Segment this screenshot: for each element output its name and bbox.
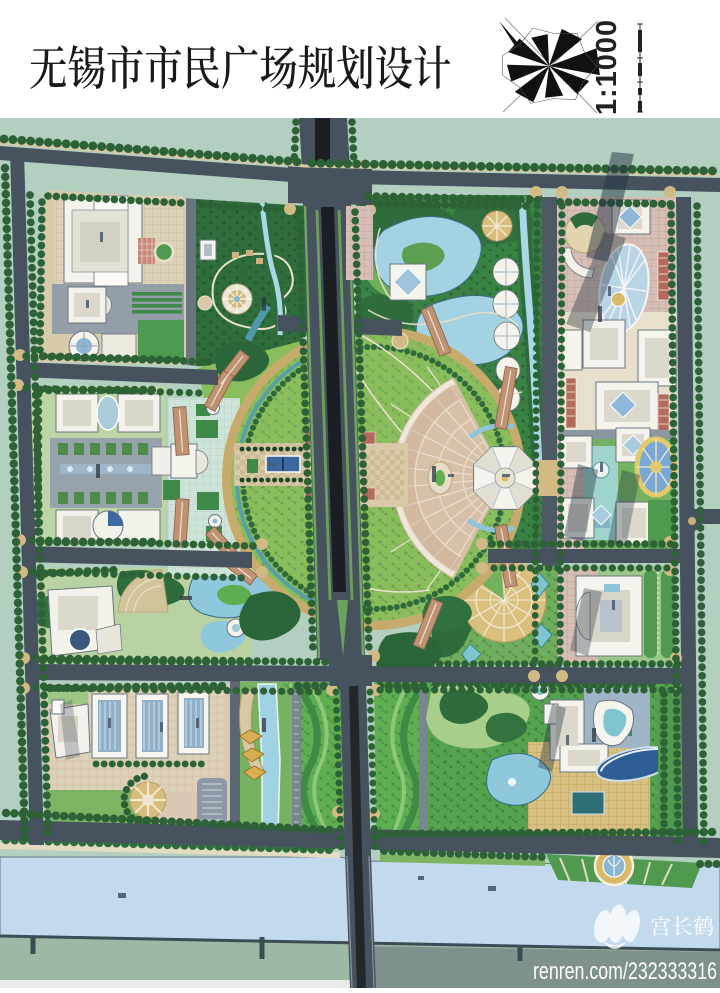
svg-text:renren.com/232333316: renren.com/232333316: [533, 958, 717, 985]
svg-text:1:1000: 1:1000: [591, 19, 623, 115]
